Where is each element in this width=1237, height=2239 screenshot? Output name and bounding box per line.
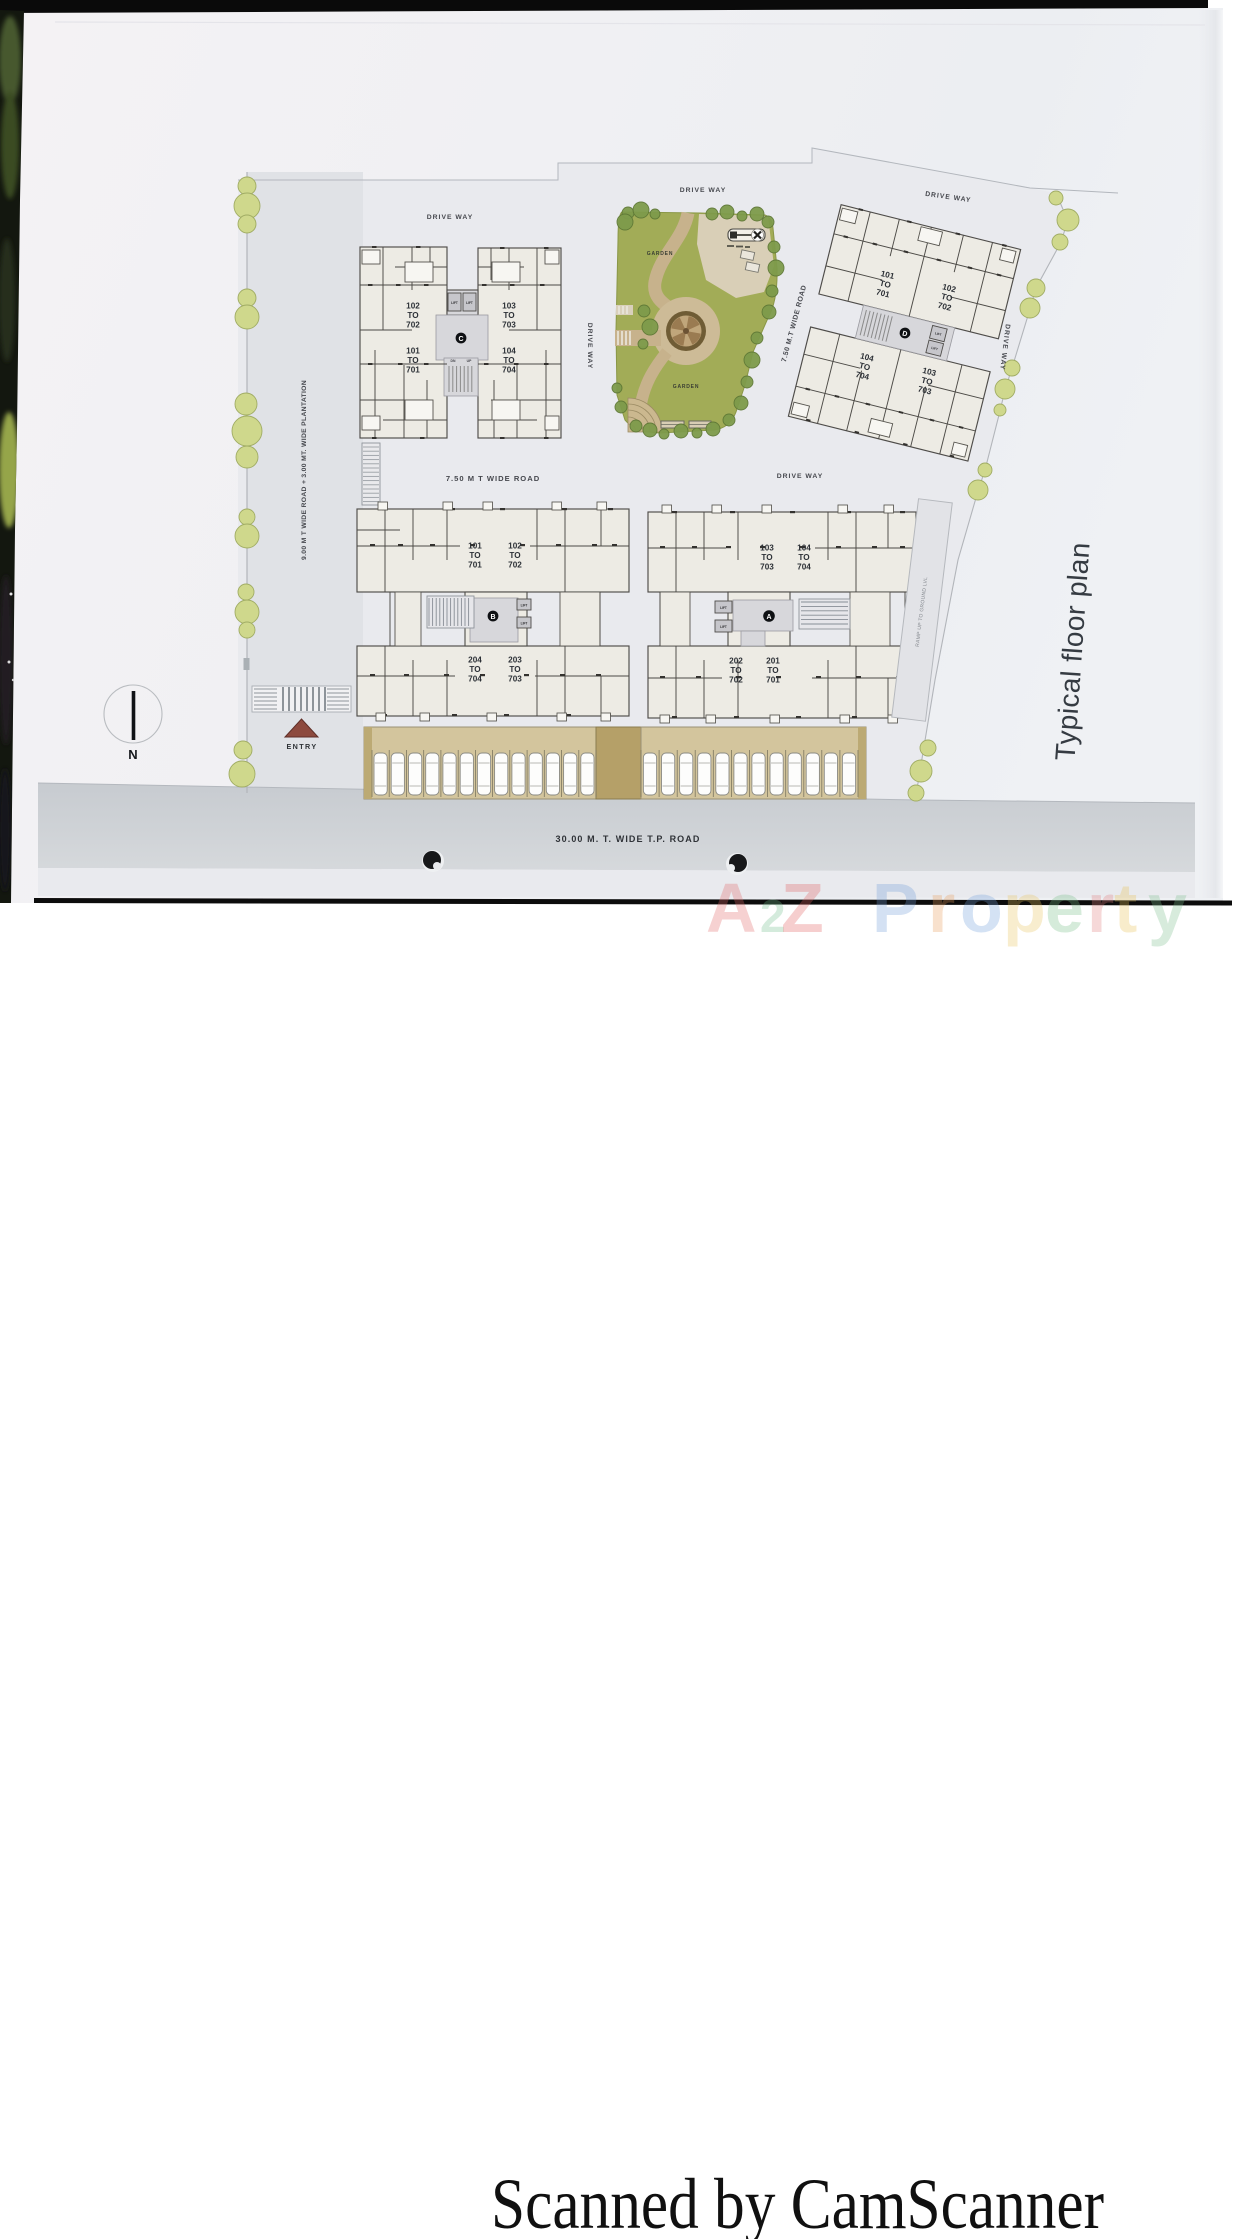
svg-text:9.00 M T WIDE ROAD + 3.00 MT.: 9.00 M T WIDE ROAD + 3.00 MT. WIDE PLANT… [301, 380, 308, 560]
svg-text:103TO703: 103TO703 [502, 302, 516, 330]
svg-text:LIFT: LIFT [720, 606, 727, 610]
svg-text:LIFT: LIFT [720, 625, 727, 629]
svg-text:y: y [1148, 869, 1187, 947]
svg-text:101TO701: 101TO701 [406, 347, 420, 375]
svg-text:A: A [706, 869, 757, 947]
svg-text:ENTRY: ENTRY [286, 742, 317, 751]
svg-text:P: P [872, 869, 919, 947]
svg-text:e: e [1045, 869, 1084, 947]
svg-text:r: r [928, 869, 955, 947]
svg-text:B: B [490, 614, 495, 621]
svg-text:Scanned by CamScanner: Scanned by CamScanner [491, 2164, 1104, 2239]
svg-text:104TO704: 104TO704 [797, 544, 811, 572]
svg-text:N: N [128, 747, 137, 762]
svg-text:GARDEN: GARDEN [673, 384, 699, 390]
svg-text:102TO702: 102TO702 [406, 302, 420, 330]
svg-text:202TO702: 202TO702 [729, 657, 743, 685]
svg-text:r: r [1087, 869, 1114, 947]
svg-text:o: o [960, 869, 1003, 947]
svg-text:LIFT: LIFT [521, 604, 528, 608]
svg-text:103TO703: 103TO703 [760, 544, 774, 572]
svg-text:t: t [1114, 869, 1137, 947]
svg-text:30.00 M. T. WIDE T.P. ROAD: 30.00 M. T. WIDE T.P. ROAD [556, 834, 701, 844]
svg-text:p: p [1003, 869, 1046, 947]
svg-text:DN: DN [451, 359, 456, 363]
svg-text:LIFT: LIFT [466, 301, 473, 305]
svg-text:Z: Z [781, 869, 824, 947]
svg-text:DRIVE WAY: DRIVE WAY [680, 187, 727, 194]
svg-text:DRIVE WAY: DRIVE WAY [427, 214, 474, 221]
svg-text:101TO701: 101TO701 [468, 542, 482, 570]
svg-text:104TO704: 104TO704 [502, 347, 516, 375]
svg-text:GARDEN: GARDEN [647, 251, 673, 257]
svg-text:201TO701: 201TO701 [766, 657, 780, 685]
svg-text:LIFT: LIFT [451, 301, 458, 305]
svg-text:203TO703: 203TO703 [508, 656, 522, 684]
svg-text:A: A [766, 614, 771, 621]
svg-text:DRIVE WAY: DRIVE WAY [586, 323, 593, 370]
svg-text:UP: UP [467, 359, 472, 363]
svg-text:7.50 M T WIDE ROAD: 7.50 M T WIDE ROAD [446, 474, 540, 483]
svg-text:204TO704: 204TO704 [468, 656, 482, 684]
svg-text:C: C [458, 336, 463, 343]
svg-text:102TO702: 102TO702 [508, 542, 522, 570]
svg-text:LIFT: LIFT [521, 622, 528, 626]
svg-text:DRIVE WAY: DRIVE WAY [777, 473, 824, 480]
